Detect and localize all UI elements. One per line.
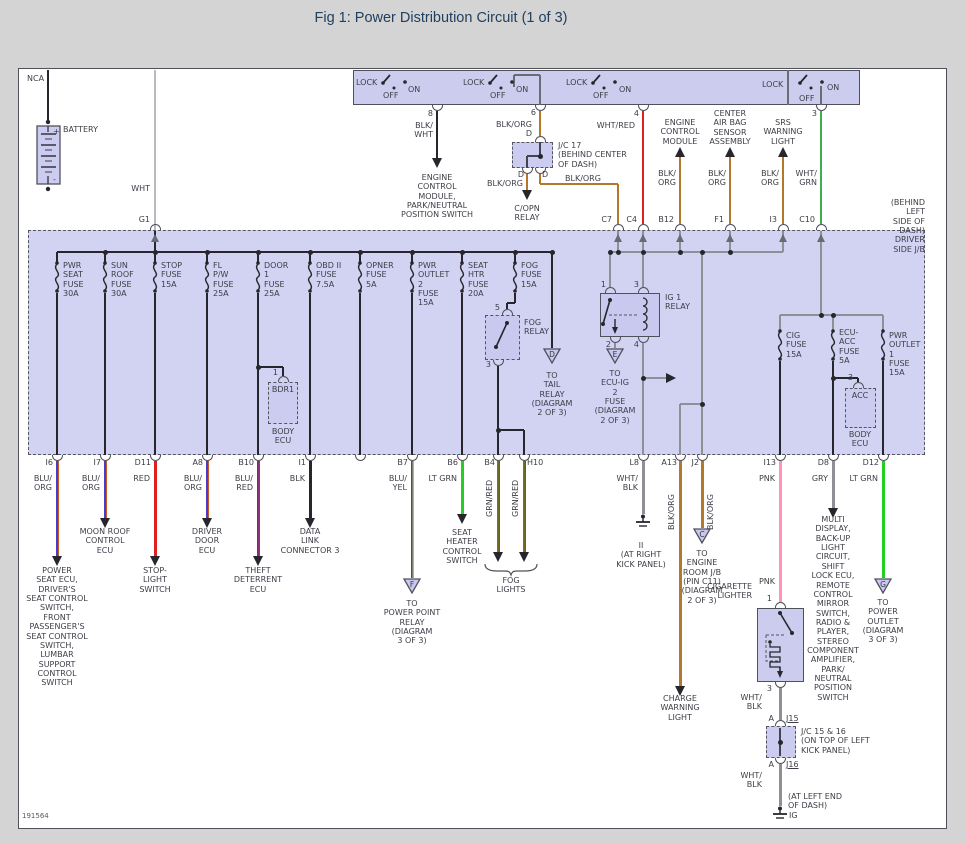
wire-segment [498,429,524,431]
connector-bump [535,136,546,142]
wire-color-label: LT GRN [428,474,457,483]
connector-label: J15 [786,714,799,723]
junction-dot [410,250,415,255]
wire-color-label: BLU/ ORG [34,474,52,493]
ignition-switch-icon [796,73,826,91]
wire-color-label: GRN/RED [485,467,494,517]
offpage-dest: TO POWER POINT RELAY (DIAGRAM 3 OF 3) [384,599,441,646]
pin-label: 2 [606,340,611,349]
fuse-label: SUN ROOF FUSE 30A [111,261,134,298]
offpage-triangle-e: E [606,348,624,364]
wire-color-label: BLK [290,474,305,483]
wire-segment [206,293,208,455]
wire-segment [642,343,644,455]
wire-color-label: WHT/ BLK [616,474,638,493]
wire-color-label: PNK [759,474,775,483]
pin-label: 3 [767,684,772,693]
relay-internal-icon [601,294,659,336]
junction-dot [728,250,733,255]
nca-label: NCA [27,74,44,83]
wire-segment [104,461,107,518]
wire-segment [642,461,645,514]
component-label: BODY ECU [272,427,294,446]
arrow-down-icon [519,552,529,562]
connector-label-f1: F1 [714,215,724,224]
wire-color-label: WHT/ BLK [740,771,762,790]
wire-segment [411,461,414,578]
ign-pos-on: ON [619,85,631,94]
component-label: SRS WARNING LIGHT [763,118,802,146]
junction-dot [678,250,683,255]
offpage-triangle-g: G [874,578,892,594]
connector-bump [613,224,624,230]
ign-pos-off: OFF [593,91,609,100]
pin-label: 1 [767,594,772,603]
connector-label: B10 [238,458,254,467]
connector-label: H10 [527,458,543,467]
wire-color-label: BLU/ YEL [389,474,407,493]
ign-pos-off: OFF [799,94,815,103]
wire-segment [701,461,704,528]
component-label: C/OPN RELAY [514,204,539,223]
entry-arrow-icon [614,234,622,242]
connector-label-b12: B12 [658,215,674,224]
wire-segment [359,293,361,455]
wire-segment [679,404,681,455]
arrow-down-icon [522,190,532,200]
battery-minus: - [53,175,56,184]
fuse-label: OBD II FUSE 7.5A [316,261,341,289]
offpage-triangle-c: C [693,528,711,544]
connector-name: ACC [852,391,869,400]
entry-arrow-icon [676,234,684,242]
connector-label: I13 [763,458,776,467]
junction-block-caption: (BEHIND LEFT SIDE OF DASH) DRIVER SIDE J… [885,198,925,254]
wire-segment [882,461,885,578]
connector-label-c7: C7 [601,215,612,224]
ignition-switch-icon [379,73,409,91]
connector-bump [725,224,736,230]
wire-segment [411,293,413,455]
junction-dot [641,250,646,255]
wire-segment [642,111,644,224]
connector-bump [775,602,786,608]
connector-label-c4: C4 [626,215,637,224]
wire-segment [154,461,157,556]
wire-segment [779,461,782,602]
connector-bump [775,720,786,726]
wire-color-label: BLK/ORG [487,179,523,188]
fuse-icon [509,260,521,294]
wire-segment [779,764,782,806]
component-label: BODY ECU [849,430,871,449]
wire-segment [643,377,666,379]
component-label: STOP- LIGHT SWITCH [139,566,170,594]
wire-segment [523,430,525,455]
wire-segment [820,231,822,315]
wire-color-label: WHT/RED [597,121,635,130]
offpage-triangle-d: D [543,348,561,364]
wire-color-label: WHT/ GRN [795,169,817,188]
wire-color-label: RED [133,474,150,483]
fuse-label: FL P/W FUSE 25A [213,261,234,298]
connector-label: J16 [786,760,799,769]
connector-name: BDR1 [272,385,294,394]
ign-pos-lock: LOCK [762,80,783,89]
connector-bump [675,224,686,230]
arrow-down-icon [432,158,442,168]
junction-dot [616,250,621,255]
wire-segment [257,293,259,455]
pin-label: 3 [812,109,817,118]
junction-dot [700,250,705,255]
wire-color-label: BLU/ RED [235,474,253,493]
connector-label: I1 [299,458,306,467]
component-label: THEFT DETERRENT ECU [234,566,282,594]
doc-number: 191564 [22,812,49,820]
connector-bump [502,309,513,315]
fuse-label: PWR OUTLET 1 FUSE 15A [889,331,920,378]
connector-label: I6 [46,458,53,467]
ign-pos-off: OFF [383,91,399,100]
wire-segment [309,293,311,455]
fuse-label: FOG FUSE 15A [521,261,542,289]
junction-dot [819,313,824,318]
junction-dot [496,428,501,433]
pin-label: 5 [495,303,500,312]
connector-bump [150,224,161,230]
pin-label: 3 [486,360,491,369]
wire-segment [56,293,58,455]
fuse-icon [877,328,889,362]
wire-color-label: BLK/ ORG [761,169,779,188]
svg-text:C: C [699,530,704,539]
junction-dot [205,250,210,255]
wire-segment [779,688,782,720]
wire-segment [526,156,528,168]
fuse-label: DOOR 1 FUSE 25A [264,261,288,298]
wire-color-label: PNK [759,577,775,586]
pin-label: 8 [428,109,433,118]
wire-segment [779,361,781,455]
wire-color-label: BLK/ ORG [658,169,676,188]
arrow-down-icon [253,556,263,566]
wire-segment [206,461,209,518]
wire-segment [820,111,822,224]
junction-dot [831,313,836,318]
ign-pos-on: ON [516,85,528,94]
ign-pos-on: ON [827,83,839,92]
wire-segment [701,252,703,455]
wire-color-label: BLK/ WHT [414,121,433,140]
fuse-icon [827,328,839,362]
wire-segment [609,252,611,287]
connector-label: A8 [192,458,203,467]
junction-dot [513,250,518,255]
pin-label: 6 [531,108,536,117]
wire-segment [782,157,784,224]
wire-segment [497,461,500,552]
wire-segment [523,461,526,552]
arrow-up-icon [725,147,735,157]
wire-segment [539,111,541,136]
ign-pos-on: ON [408,85,420,94]
location-label: (AT LEFT END OF DASH) [788,792,842,811]
battery-icon: + - [36,118,62,192]
fuse-icon [99,260,111,294]
component-label: SEAT HEATER CONTROL SWITCH [442,528,481,565]
wire-segment [679,157,681,224]
wire-color-label: WHT/ BLK [740,693,762,712]
wiring-diagram-page: Fig 1: Power Distribution Circuit (1 of … [0,0,965,844]
wire-segment [258,366,283,368]
relay-contact-icon [487,317,517,357]
page-title: Fig 1: Power Distribution Circuit (1 of … [314,10,567,26]
wire-segment [642,252,644,287]
entry-arrow-icon [817,234,825,242]
junction-dot [308,250,313,255]
relay-label: IG 1 RELAY [665,293,690,312]
wire-segment [497,366,499,455]
junction-dot [538,154,543,159]
connector-label-i3: I3 [770,215,777,224]
cigarette-lighter-icon [758,609,803,681]
offpage-dest: TO POWER OUTLET (DIAGRAM 3 OF 3) [863,598,904,645]
junction-dot [256,250,261,255]
pin-label: A [769,760,774,769]
connector-label: B4 [484,458,495,467]
pin-label: 4 [634,340,639,349]
brace-icon [483,562,539,574]
wire-segment [832,461,835,508]
jc15-16-label: J/C 15 & 16 (ON TOP OF LEFT KICK PANEL) [801,727,870,755]
fuse-label: ECU- ACC FUSE 5A [839,328,860,365]
ign-pos-lock: LOCK [356,78,377,87]
wire-segment [526,174,528,190]
pin-label: A [769,714,774,723]
connector-bump [853,382,864,388]
wire-color-label: BLK/ORG [667,476,676,530]
wire-segment [882,361,884,455]
battery-label: BATTERY [63,125,98,134]
wire-segment [56,461,59,556]
junction-dot [358,250,363,255]
connector-bump [278,376,289,382]
wire-segment [729,157,731,224]
pin-label: D [526,129,532,138]
junction-dot [778,740,783,745]
junction-dot [103,250,108,255]
component-label: ENGINE CONTROL MODULE [660,118,699,146]
offpage-dest: TO TAIL RELAY (DIAGRAM 2 OF 3) [532,371,573,418]
junction-dot [256,365,261,370]
connector-label: B7 [397,458,408,467]
connector-label: L8 [629,458,639,467]
fuse-icon [406,260,418,294]
fuse-icon [456,260,468,294]
connector-bump [605,287,616,293]
wire-segment [539,75,541,105]
wire-segment [309,461,312,518]
junction-dot [831,376,836,381]
pin-label: D [542,170,548,179]
wire-segment [436,111,438,158]
pin-label: 3 [634,280,639,289]
connector-bump [778,224,789,230]
svg-text:E: E [613,350,618,359]
ign-pos-lock: LOCK [463,78,484,87]
wire-segment [551,252,553,348]
junction-dot [700,402,705,407]
component-label: FOG LIGHTS [497,576,526,595]
fuse-icon [304,260,316,294]
component-label: CENTER AIR BAG SENSOR ASSEMBLY [709,109,750,146]
fuse-label: CIG FUSE 15A [786,331,807,359]
pin-label: D [518,170,524,179]
relay-label: FOG RELAY [524,318,549,337]
wire-color-label: LT GRN [849,474,878,483]
ground-label: II (AT RIGHT KICK PANEL) [616,541,665,569]
connector-label: D11 [135,458,151,467]
wire-color-label: WHT [131,184,150,193]
junction-dot [460,250,465,255]
offpage-triangle-f: F [403,578,421,594]
fuse-icon [354,260,366,294]
wire-color-label: GRN/RED [511,467,520,517]
pin-label: 1 [601,280,606,289]
arrow-down-icon [52,556,62,566]
connector-label: J2 [692,458,699,467]
wire-color-label: BLK/ORG [706,476,715,530]
wire-color-label: BLK/ORG [496,120,532,129]
entry-arrow-icon [779,234,787,242]
wire-segment [257,461,260,556]
arrow-right-icon [666,373,676,383]
component-label: ENGINE CONTROL MODULE, PARK/NEUTRAL POSI… [401,173,473,220]
fuse-icon [51,260,63,294]
box-divider [787,70,789,105]
connector-bump [638,287,649,293]
fuse-icon [252,260,264,294]
fuse-icon [149,260,161,294]
component-label: CHARGE WARNING LIGHT [660,694,699,722]
wire-segment [680,403,702,405]
fuse-label: STOP FUSE 15A [161,261,182,289]
wire-color-label: BLK/ ORG [708,169,726,188]
wire-segment [833,377,858,379]
arrow-up-icon [675,147,685,157]
arrow-down-icon [493,552,503,562]
junction-dot [550,250,555,255]
connector-label: B6 [447,458,458,467]
bus-wire [57,251,553,253]
connector-label-g1: G1 [139,215,150,224]
junction-dot [153,250,158,255]
wire-segment [154,70,156,230]
ground-icon [635,514,651,530]
fuse-label: SEAT HTR FUSE 20A [468,261,489,298]
pin-label: 3 [848,373,853,382]
ground-label: IG [789,811,798,820]
wire-segment [154,293,156,455]
pin-label: 4 [634,109,639,118]
component-label: MOON ROOF CONTROL ECU [80,527,131,555]
wire-segment [282,367,284,376]
wire-color-label: BLK/ORG [565,174,601,183]
svg-text:G: G [880,580,886,589]
junction-dot [641,376,646,381]
wire-segment [461,293,463,455]
wire-segment [507,302,515,304]
fuse-label: PWR OUTLET 2 FUSE 15A [418,261,449,308]
component-label: CIGARETTE LIGHTER [707,582,752,601]
connector-label: D12 [863,458,879,467]
ground-icon [772,806,788,822]
wire-segment [104,293,106,455]
wire-segment [514,74,540,76]
entry-arrow-icon [726,234,734,242]
offpage-dest: TO ECU-IG 2 FUSE (DIAGRAM 2 OF 3) [595,369,636,425]
connector-bump [638,224,649,230]
connector-label: D8 [818,458,829,467]
component-label: POWER SEAT ECU, DRIVER'S SEAT CONTROL SW… [26,566,87,688]
wire-segment [617,184,619,224]
svg-text:D: D [549,350,555,359]
wire-segment [461,461,464,514]
entry-arrow-icon [639,234,647,242]
ign-pos-lock: LOCK [566,78,587,87]
fuse-icon [774,328,786,362]
ignition-switch-icon [589,73,619,91]
bus-wire [610,251,783,253]
pin-label: 1 [273,368,278,377]
battery-plus: + [53,127,60,136]
connector-bump [816,224,827,230]
connector-label-c10: C10 [799,215,815,224]
fuse-icon [201,260,213,294]
component-label: DATA LINK CONNECTOR 3 [281,527,340,555]
arrow-up-icon [778,147,788,157]
fuse-label: PWR SEAT FUSE 30A [63,261,84,298]
wire-color-label: BLU/ ORG [82,474,100,493]
junction-dot [608,250,613,255]
component-label: MULTI DISPLAY, BACK-UP LIGHT CIRCUIT, SH… [807,515,859,702]
component-label: DRIVER DOOR ECU [192,527,222,555]
wire-color-label: GRY [812,474,828,483]
arrow-down-icon [150,556,160,566]
svg-text:F: F [410,580,414,589]
fuse-label: OPNER FUSE 5A [366,261,394,289]
connector-label: A13 [661,458,677,467]
ign-pos-off: OFF [490,91,506,100]
wire-color-label: BLU/ ORG [184,474,202,493]
arrow-down-icon [457,514,467,524]
wire-segment [47,70,49,122]
connector-label: I7 [94,458,101,467]
ignition-switch-icon [486,73,516,91]
jc17-label: J/C 17 (BEHIND CENTER OF DASH) [558,141,627,169]
entry-arrow-icon [151,234,159,242]
